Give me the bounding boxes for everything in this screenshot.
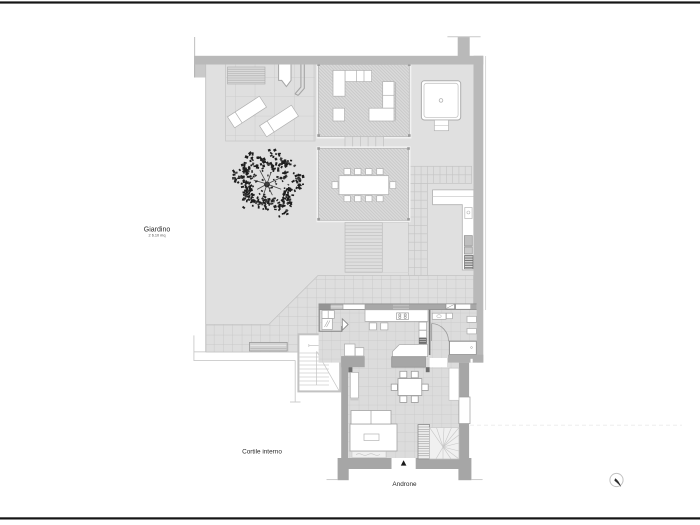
svg-text:Cortile interno: Cortile interno	[242, 449, 282, 456]
svg-text:Androne: Androne	[392, 481, 417, 488]
svg-text:Giardino: Giardino	[144, 227, 171, 234]
svg-text:2 6.10 mq: 2 6.10 mq	[149, 234, 166, 238]
